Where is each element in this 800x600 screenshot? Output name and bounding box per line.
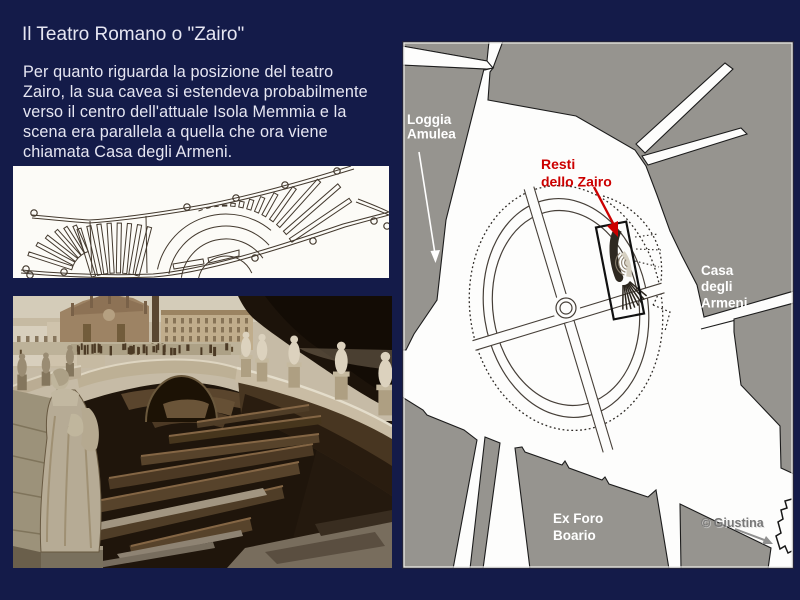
svg-text:Casa: Casa: [701, 263, 734, 278]
svg-text:dello Zairo: dello Zairo: [541, 174, 612, 190]
svg-text:Armeni: Armeni: [701, 296, 748, 311]
svg-text:Resti: Resti: [541, 156, 575, 172]
svg-text:Loggia: Loggia: [407, 112, 452, 127]
svg-text:Boario: Boario: [553, 528, 596, 543]
svg-text:Ex Foro: Ex Foro: [553, 511, 603, 526]
svg-text:degli: degli: [701, 279, 733, 294]
svg-text:Amulea: Amulea: [407, 127, 456, 142]
svg-text:© Giustina: © Giustina: [701, 516, 765, 530]
